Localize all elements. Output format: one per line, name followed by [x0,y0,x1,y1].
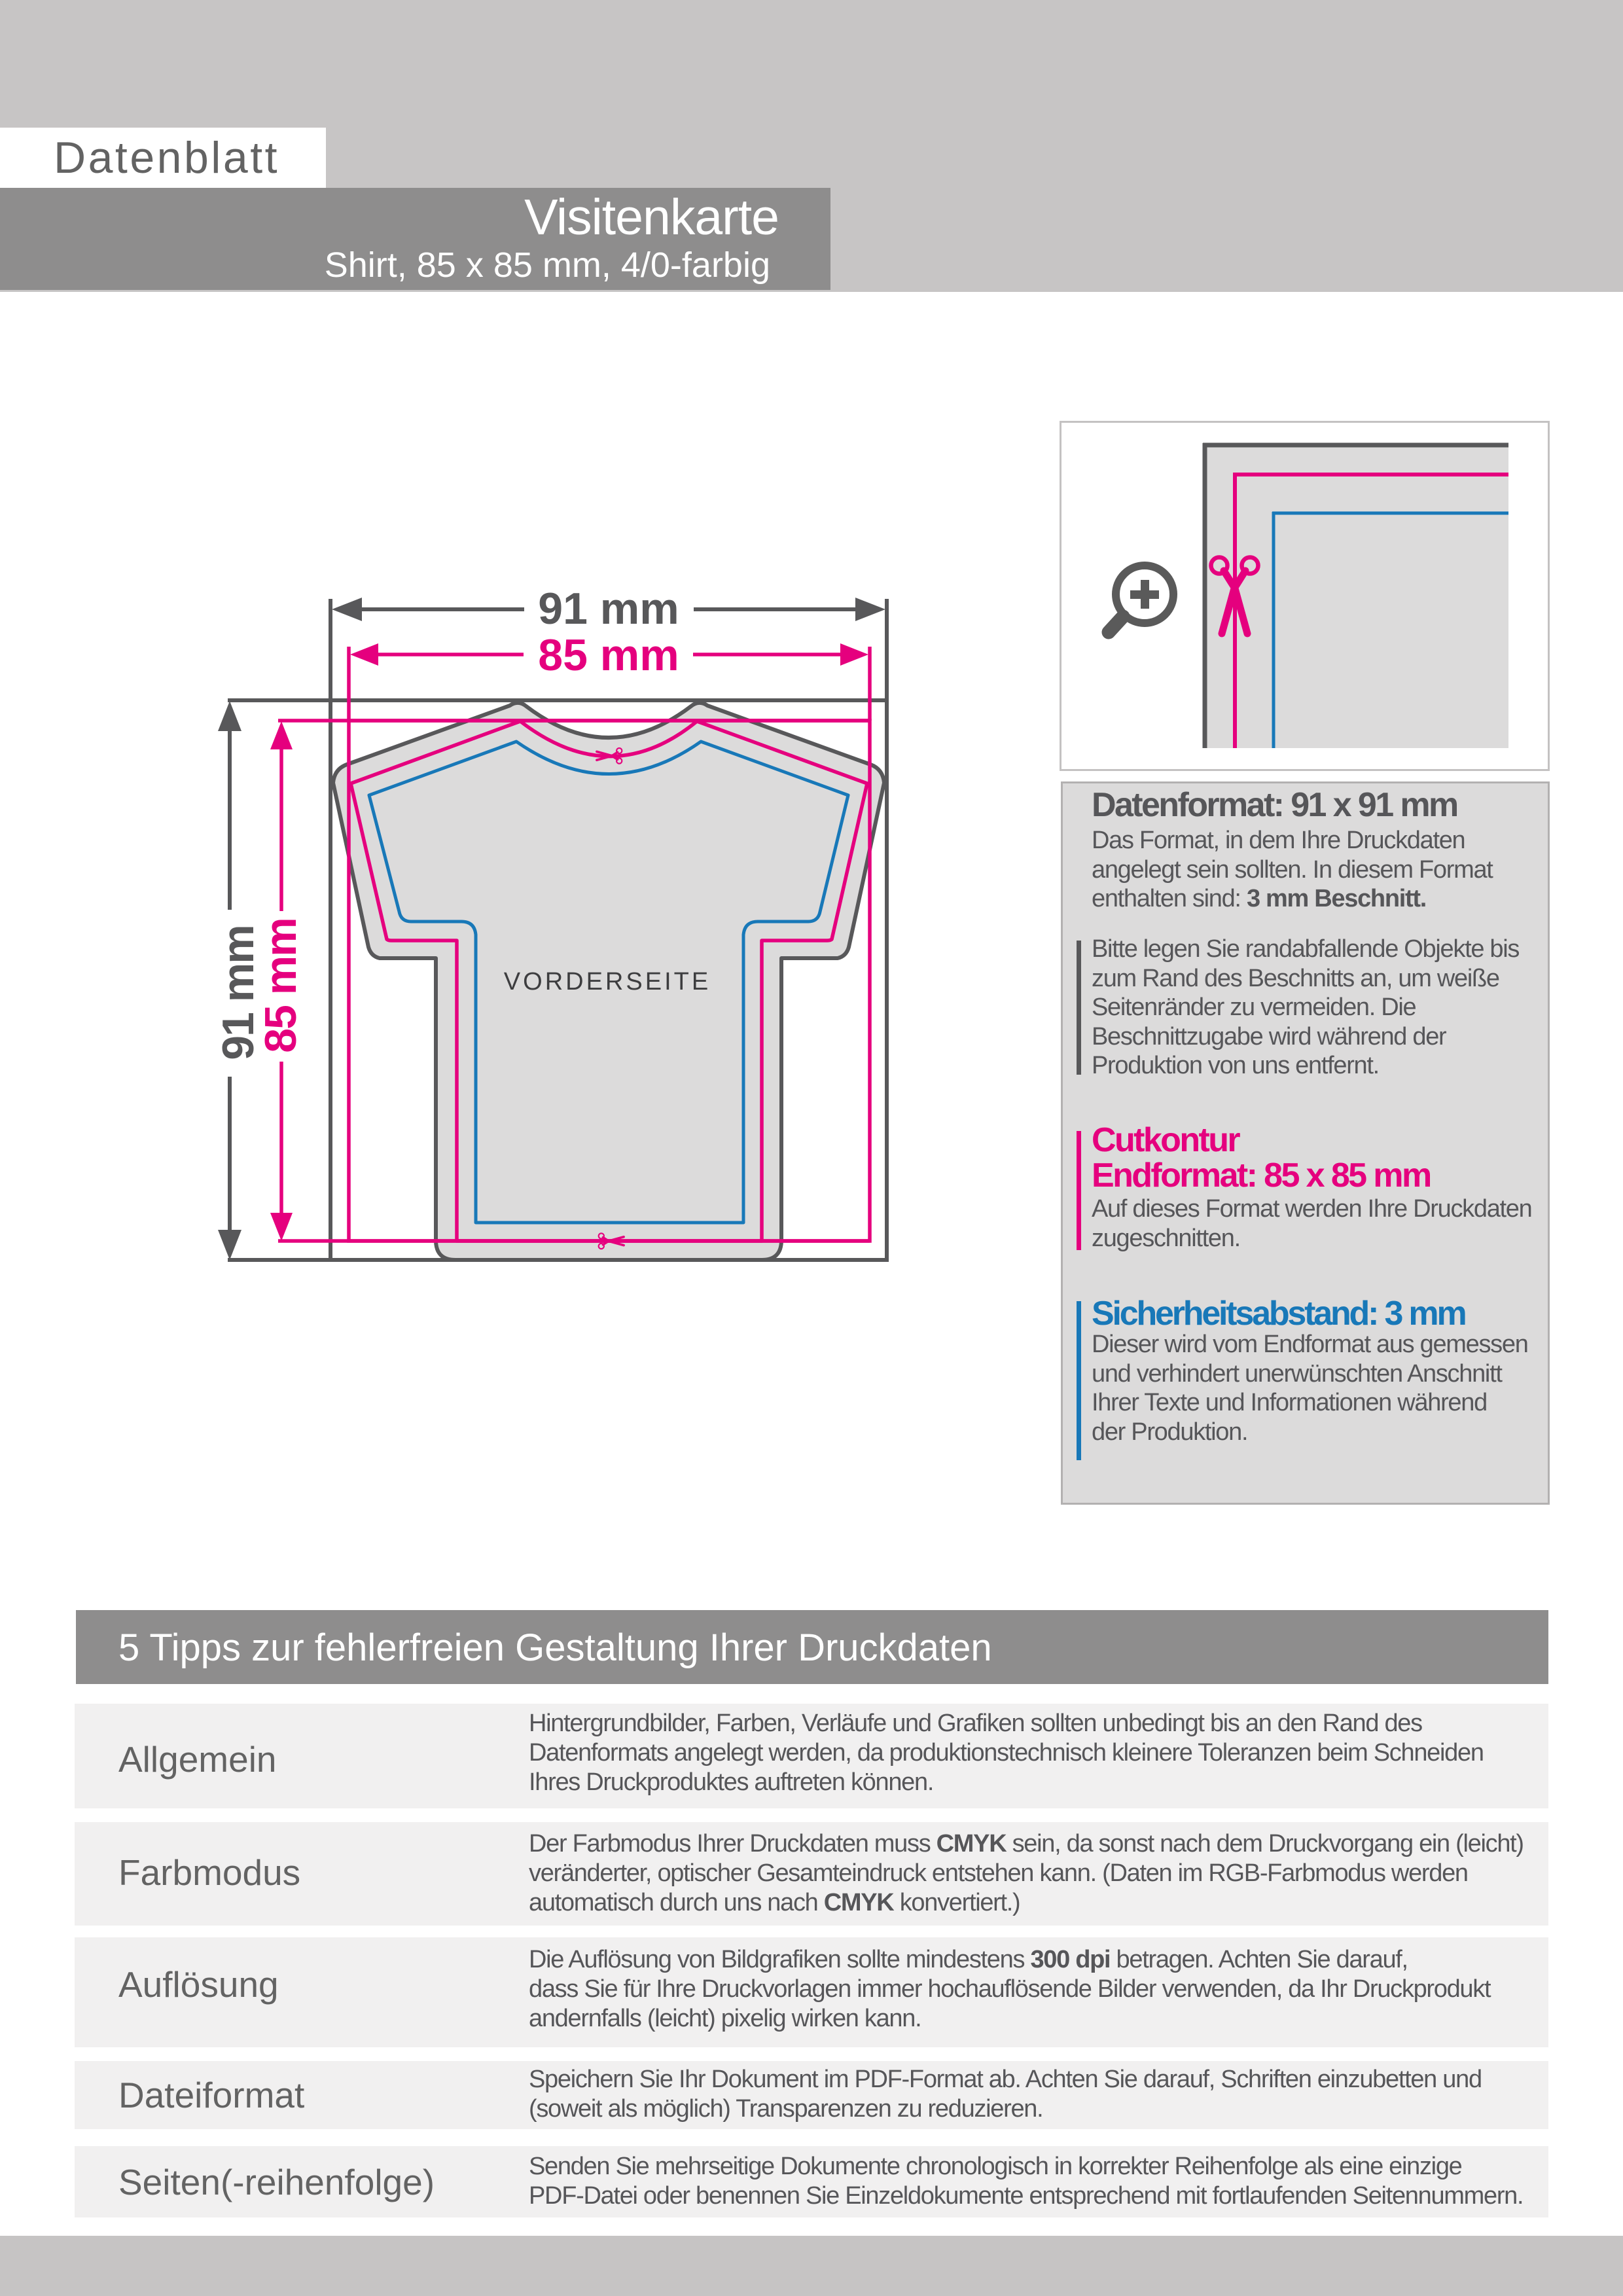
svg-text:VORDERSEITE: VORDERSEITE [504,968,711,996]
svg-text:85 mm: 85 mm [538,630,679,680]
svg-text:85 mm: 85 mm [256,918,306,1052]
svg-text:91 mm: 91 mm [538,584,679,634]
